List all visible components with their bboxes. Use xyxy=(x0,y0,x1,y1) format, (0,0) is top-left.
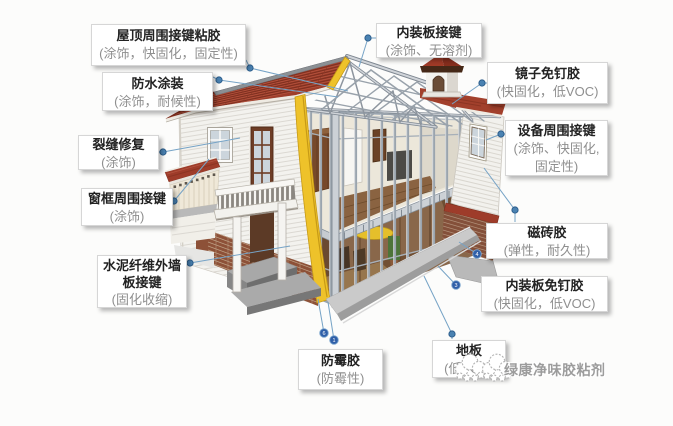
svg-text:6: 6 xyxy=(322,331,325,337)
svg-text:1: 1 xyxy=(332,338,335,344)
svg-text:4: 4 xyxy=(475,252,478,258)
svg-text:3: 3 xyxy=(454,283,457,289)
